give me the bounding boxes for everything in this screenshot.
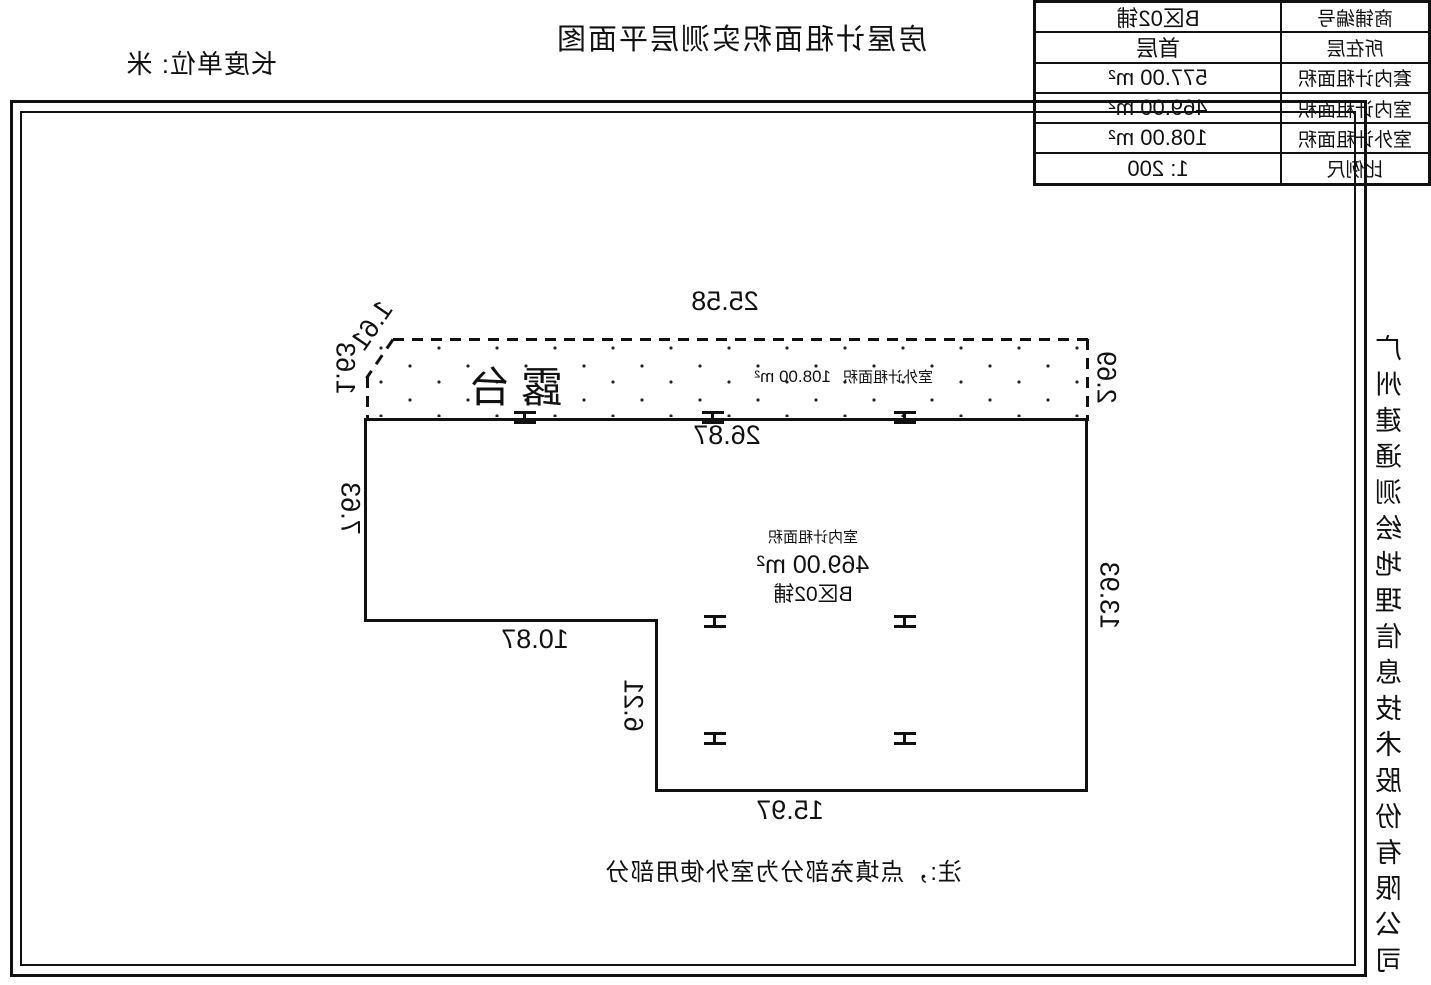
indoor-area-caption: 室内计租面积 469.00 m² B区02铺	[693, 527, 933, 608]
column-marker	[704, 732, 726, 745]
dim-notch: 6.21	[618, 646, 649, 766]
terrace-label: 露台	[459, 354, 563, 415]
note-text: 注:，点填充部分为室外使用部分	[604, 852, 962, 887]
terrace-dashed-right	[366, 377, 369, 421]
mirrored-canvas: 房屋计租面积实测层平面图 长度单位: 米 广州建通测绘地理信息技术股份有限公司 …	[0, 0, 1431, 985]
wall-step	[364, 619, 658, 622]
dim-bottom: 15.97	[730, 795, 850, 826]
dim-step: 10.87	[475, 624, 595, 655]
company-name: 广州建通测绘地理信息技术股份有限公司	[1371, 334, 1425, 984]
dim-indoor-top: 26.87	[667, 420, 787, 451]
column-marker	[894, 411, 916, 424]
outdoor-area-caption: 室外计租面积 108.00 m²	[754, 366, 933, 387]
table-row-value: 577.00 m²	[1035, 63, 1281, 93]
column-marker	[894, 615, 916, 628]
wall-notch-vertical	[655, 619, 658, 792]
unit-label: 长度单位: 米	[17, 44, 277, 81]
column-marker	[704, 615, 726, 628]
indoor-area-label: 室内计租面积	[693, 527, 933, 549]
dim-terrace-left: 2.69	[1091, 318, 1122, 438]
outdoor-area-label: 室外计租面积	[843, 366, 933, 387]
dim-right-upper: 7.63	[335, 449, 366, 569]
table-row-label: 商铺编号	[1281, 2, 1429, 32]
table-row-label: 所在层	[1281, 32, 1429, 62]
table-row-value: 首层	[1035, 32, 1281, 62]
wall-left	[1085, 418, 1088, 792]
wall-bottom	[655, 789, 1088, 792]
outdoor-area-value: 108.00 m²	[754, 367, 831, 387]
drawing-sheet: 房屋计租面积实测层平面图 长度单位: 米 广州建通测绘地理信息技术股份有限公司 …	[0, 0, 1431, 985]
dim-terrace-top: 25.58	[665, 286, 785, 317]
drawing-frame-inner	[20, 111, 1356, 966]
page-title: 房屋计租面积实测层平面图	[551, 16, 931, 58]
terrace-dashed-top	[391, 338, 1088, 341]
table-row-value: B区02铺	[1035, 2, 1281, 32]
table-row-label: 套内计租面积	[1281, 63, 1429, 93]
indoor-area-value: 469.00 m²	[693, 549, 933, 581]
column-marker	[894, 732, 916, 745]
shop-id-label: B区02铺	[693, 581, 933, 608]
terrace-dashed-left	[1086, 339, 1089, 421]
dim-left-wall: 13.93	[1094, 536, 1125, 656]
